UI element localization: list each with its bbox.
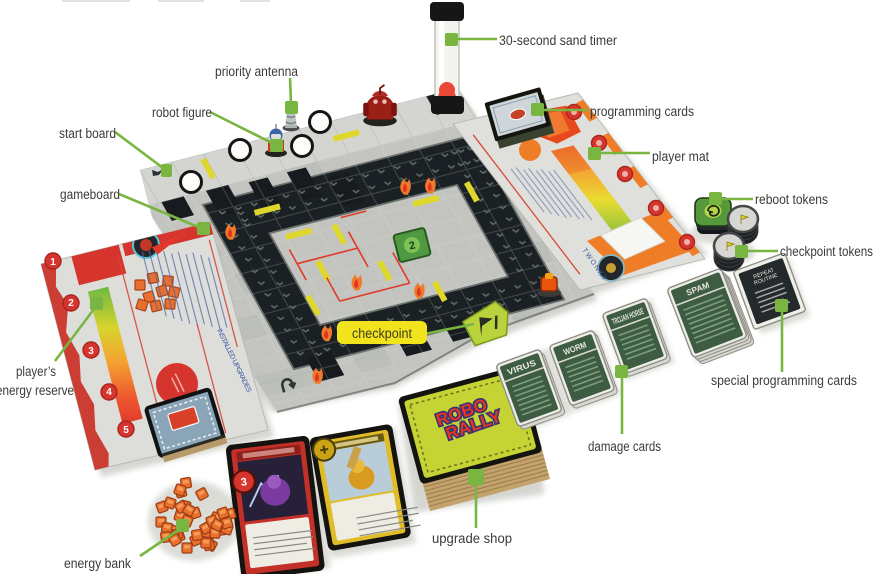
svg-text:start board: start board: [59, 126, 116, 142]
svg-text:1: 1: [50, 257, 56, 268]
svg-text:damage cards: damage cards: [588, 439, 661, 455]
svg-text:3: 3: [88, 346, 94, 357]
svg-text:priority antenna: priority antenna: [215, 64, 298, 80]
svg-text:player’s: player’s: [16, 364, 56, 380]
svg-text:gameboard: gameboard: [60, 187, 120, 203]
svg-text:5: 5: [123, 425, 129, 436]
svg-text:player mat: player mat: [652, 149, 709, 165]
svg-text:robot figure: robot figure: [152, 105, 212, 121]
svg-text:reboot tokens: reboot tokens: [755, 192, 828, 208]
svg-text:30-second sand timer: 30-second sand timer: [499, 33, 617, 49]
svg-text:upgrade shop: upgrade shop: [432, 531, 512, 547]
svg-text:energy reserve: energy reserve: [0, 383, 74, 399]
svg-text:2: 2: [68, 298, 74, 309]
svg-text:checkpoint: checkpoint: [352, 326, 412, 341]
svg-text:checkpoint tokens: checkpoint tokens: [780, 244, 873, 260]
svg-text:special programming cards: special programming cards: [711, 373, 857, 389]
svg-text:programming cards: programming cards: [590, 104, 694, 120]
svg-text:energy bank: energy bank: [64, 556, 132, 572]
svg-text:4: 4: [106, 387, 112, 398]
